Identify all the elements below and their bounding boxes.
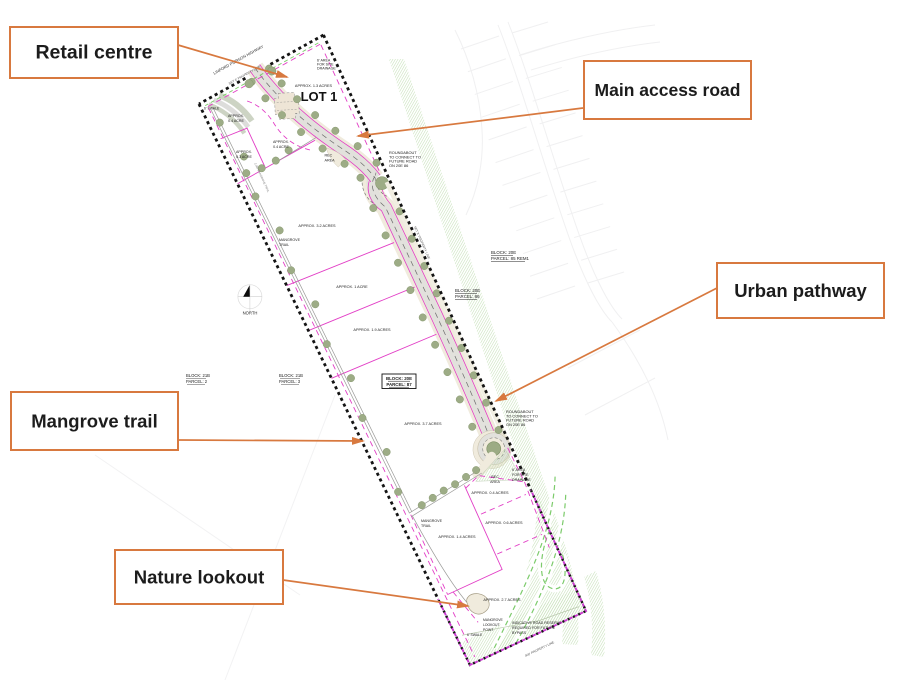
svg-text:APPROX. 3.2 ACRES: APPROX. 3.2 ACRES bbox=[298, 224, 336, 228]
svg-text:TRAIL: TRAIL bbox=[279, 243, 289, 247]
svg-text:BLOCK: 21B: BLOCK: 21B bbox=[279, 373, 303, 378]
svg-text:BYPASS: BYPASS bbox=[512, 631, 527, 635]
svg-text:0.3 ACRE: 0.3 ACRE bbox=[236, 155, 252, 159]
svg-text:ON 20E 86: ON 20E 86 bbox=[389, 163, 408, 168]
svg-text:0.4 ACRE: 0.4 ACRE bbox=[273, 145, 289, 149]
svg-text:MANGROVE: MANGROVE bbox=[279, 238, 301, 242]
svg-text:APPROX. 0.6 ACRES: APPROX. 0.6 ACRES bbox=[485, 521, 523, 525]
svg-text:PARCEL: 87: PARCEL: 87 bbox=[386, 382, 412, 387]
svg-text:APPROX. 3.7 ACRES: APPROX. 3.7 ACRES bbox=[404, 422, 442, 426]
svg-text:BLOCK: 21B: BLOCK: 21B bbox=[186, 373, 210, 378]
svg-text:AREA: AREA bbox=[490, 480, 500, 484]
svg-text:0.4 ACRE: 0.4 ACRE bbox=[228, 119, 244, 123]
svg-text:MANGROVE: MANGROVE bbox=[421, 519, 443, 523]
svg-text:APPROX.: APPROX. bbox=[236, 150, 252, 154]
svg-text:DRAINAGE: DRAINAGE bbox=[317, 66, 336, 70]
svg-text:Urban pathway: Urban pathway bbox=[734, 280, 867, 301]
svg-text:PARCEL: 2: PARCEL: 2 bbox=[186, 379, 208, 384]
svg-text:PARCEL: 3: PARCEL: 3 bbox=[279, 379, 301, 384]
svg-text:REC: REC bbox=[491, 475, 499, 479]
svg-text:FOR SITE: FOR SITE bbox=[512, 473, 529, 477]
svg-text:APPROX. 1 ACRE: APPROX. 1 ACRE bbox=[336, 285, 368, 289]
svg-text:BLOCK: 20E: BLOCK: 20E bbox=[386, 376, 412, 381]
svg-text:APPROX. 1.3 ACRES: APPROX. 1.3 ACRES bbox=[295, 84, 333, 88]
svg-text:APPROX. 1.9 ACRES: APPROX. 1.9 ACRES bbox=[353, 328, 391, 332]
svg-text:Nature lookout: Nature lookout bbox=[134, 567, 265, 588]
svg-text:POINT: POINT bbox=[483, 628, 493, 632]
svg-text:6' SWALE: 6' SWALE bbox=[204, 107, 220, 111]
svg-text:REQUIRED FOR FUTURE: REQUIRED FOR FUTURE bbox=[512, 626, 556, 630]
svg-text:APPROX. 0.4 ACRES: APPROX. 0.4 ACRES bbox=[471, 491, 509, 495]
svg-text:BLOCK: 20E: BLOCK: 20E bbox=[491, 250, 516, 255]
svg-text:APPROX.: APPROX. bbox=[273, 140, 289, 144]
svg-text:MANGROVE: MANGROVE bbox=[483, 618, 504, 622]
svg-text:6' SWALE: 6' SWALE bbox=[467, 633, 483, 637]
svg-text:APPROX. 2.7 ACRES: APPROX. 2.7 ACRES bbox=[483, 598, 521, 602]
svg-text:PARCEL: 85 REM1: PARCEL: 85 REM1 bbox=[491, 256, 530, 261]
svg-text:6' AREA: 6' AREA bbox=[512, 468, 526, 472]
svg-text:NORTH: NORTH bbox=[243, 311, 258, 316]
svg-text:AREA: AREA bbox=[325, 158, 336, 162]
svg-text:APPROX. 1.4 ACRES: APPROX. 1.4 ACRES bbox=[438, 535, 476, 539]
svg-text:TRAIL: TRAIL bbox=[421, 524, 431, 528]
svg-text:DRAINAGE: DRAINAGE bbox=[512, 478, 531, 482]
svg-text:INDICATIVE ROAD RESERVE: INDICATIVE ROAD RESERVE bbox=[512, 621, 562, 625]
svg-text:BLOCK: 20E: BLOCK: 20E bbox=[455, 288, 480, 293]
svg-text:APPROX.: APPROX. bbox=[228, 114, 244, 118]
svg-text:LOT 1: LOT 1 bbox=[301, 89, 338, 104]
svg-text:LOOKOUT: LOOKOUT bbox=[483, 623, 500, 627]
svg-text:Mangrove trail: Mangrove trail bbox=[31, 411, 157, 432]
svg-text:REC: REC bbox=[325, 154, 333, 158]
svg-text:Main access road: Main access road bbox=[595, 80, 741, 100]
svg-text:PARCEL: 86: PARCEL: 86 bbox=[455, 294, 480, 299]
svg-text:Retail centre: Retail centre bbox=[35, 42, 152, 64]
svg-text:ON 20E 86: ON 20E 86 bbox=[506, 422, 525, 427]
